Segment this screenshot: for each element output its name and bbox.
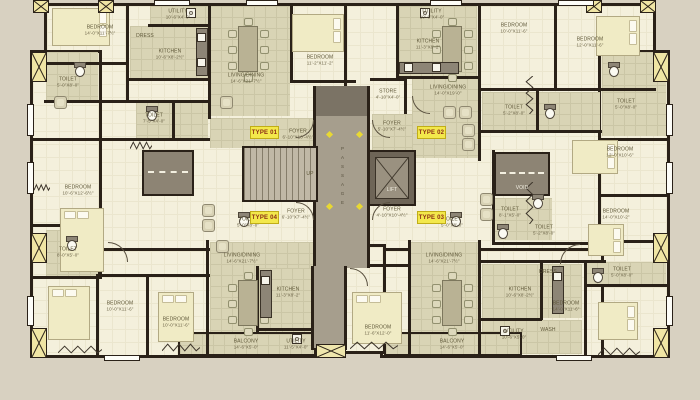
zigzag-window-icon: [130, 138, 152, 149]
type-02-tag[interactable]: TYPE 02: [417, 126, 446, 139]
room-label-kitchen: KITCHEN11'-3"X8'-2": [416, 38, 440, 49]
appliance-icon: [261, 276, 270, 285]
sofa-cushion: [480, 208, 493, 221]
room-label-living-dining: LIVING/DINING14'-6"X21'-7½": [426, 252, 463, 263]
wall: [404, 78, 407, 114]
passage-label: PASSAGE: [340, 146, 345, 266]
sofa-cushion: [220, 96, 233, 109]
room-label-living-dining: LIVING/DINING14'-6"X21'-7½": [228, 72, 265, 83]
bed: [588, 224, 624, 256]
window: [154, 0, 190, 6]
sofa-cushion: [462, 124, 475, 137]
toilet-icon: [497, 224, 507, 238]
appliance-icon: [197, 33, 206, 42]
sofa-cushion: [480, 193, 493, 206]
room-label-dress: DRESS: [136, 33, 154, 39]
window: [246, 0, 278, 6]
lobby-dark: [316, 86, 370, 116]
void-box-left: [142, 150, 194, 196]
window: [27, 104, 34, 136]
type-01-tag[interactable]: TYPE 01: [250, 126, 279, 139]
room-label-toilet: TOILET5'-2"X8'-0": [503, 104, 525, 115]
column-marker: [640, 0, 656, 13]
bed: [352, 292, 402, 344]
type-03-tag[interactable]: TYPE 03: [417, 211, 446, 224]
wall: [584, 260, 587, 358]
wall: [480, 260, 606, 263]
chair: [228, 300, 237, 308]
toilet-icon: [74, 62, 84, 76]
chair: [228, 46, 237, 54]
window: [666, 104, 673, 136]
wall: [44, 100, 210, 103]
mat-x-icon: [317, 345, 345, 357]
chair: [432, 284, 441, 292]
chair: [464, 62, 473, 70]
bed: [292, 14, 344, 52]
room-label-foyer: FOYER6'-10"X7'-4½": [282, 208, 310, 219]
appliance-icon: [404, 63, 413, 72]
room-label-bedroom: BEDROOM12'-0"X10'-6": [606, 146, 633, 157]
wall: [146, 276, 149, 358]
room-label-bedroom: BEDROOM14'-0"X10'-2": [602, 208, 629, 219]
dining-table: [442, 280, 462, 326]
chair: [464, 284, 473, 292]
chair: [228, 316, 237, 324]
room-label-utility: UTILITY10'-6"X5'-0": [502, 328, 527, 339]
room-label-toilet: TOILET5'-0"X8'-0": [611, 266, 633, 277]
room-label-living-dining: LIVING/DINING14'-0"X19'-0": [430, 84, 467, 95]
wall: [311, 266, 314, 350]
chair: [448, 18, 457, 26]
wall: [126, 78, 211, 81]
window: [666, 162, 673, 194]
column-marker: [31, 52, 47, 82]
zigzag-window-icon: [58, 342, 102, 353]
toilet-icon: [544, 104, 554, 118]
room-label-toilet: TOILET5'-0"X8'-0": [57, 76, 79, 87]
room-label-kitchen: KITCHEN10'-6"X8'-2½": [506, 286, 534, 297]
room-label-foyer: FOYER6'-10"X10'-4½": [282, 128, 313, 139]
room-label-kitchen: KITCHEN11'-3"X8'-2": [276, 286, 300, 297]
chair: [228, 62, 237, 70]
room-label-toilet: TOILET8'-0"X5'-0": [57, 246, 79, 257]
room-label-bedroom: BEDROOM10'-6"X12'-6½": [62, 184, 93, 195]
sofa-cushion: [216, 240, 229, 253]
toilet-icon: [608, 62, 618, 76]
type-04-tag[interactable]: TYPE 04: [250, 211, 279, 224]
bed: [48, 286, 90, 340]
room-label-utility: UTILITY10'-6"X4'-0": [420, 8, 445, 19]
wall: [206, 240, 209, 358]
chair: [448, 74, 457, 82]
chair: [260, 62, 269, 70]
room-label-toilet: TOILET7'-5"X4'-0": [143, 112, 165, 123]
room-label-toilet: TOILET5'-0"X8'-0": [615, 98, 637, 109]
wall: [290, 80, 356, 83]
room-label-bedroom: BEDROOM11'-2"X11'-2": [307, 54, 334, 65]
entrance-mat: [316, 344, 346, 358]
room-label-bedroom: BEDROOM10'-0"X11'-6": [107, 300, 134, 311]
chair: [244, 272, 253, 280]
room-label-dress: DRESS: [539, 269, 557, 275]
chair: [448, 328, 457, 336]
sofa-cushion: [202, 204, 215, 217]
room-label-toilet: TOILET8'-1"X5'-0": [499, 206, 521, 217]
room-label-wash: WASH: [540, 327, 555, 333]
wall: [478, 3, 481, 161]
column-marker: [653, 233, 669, 263]
chair: [432, 316, 441, 324]
wall: [536, 90, 539, 132]
chair: [432, 30, 441, 38]
sofa-cushion: [459, 106, 472, 119]
column-marker: [31, 328, 47, 358]
wall: [148, 24, 210, 27]
room-label-bedroom: BEDROOM10'-0"X11'-6": [501, 22, 528, 33]
bed: [598, 302, 638, 340]
window: [430, 0, 462, 6]
wall: [480, 318, 542, 321]
room-label-kitchen: KITCHEN10'-6"X8'-2½": [156, 48, 184, 59]
appliance-icon: [432, 63, 441, 72]
room-label-balcony: BALCONY14'-6"X5'-0": [234, 338, 259, 349]
wall: [408, 240, 411, 358]
zigzag-window-icon: [350, 338, 398, 349]
dining-set: [430, 272, 476, 336]
dining-table: [238, 280, 258, 326]
wall: [96, 274, 210, 277]
wall: [44, 62, 129, 65]
column-marker: [31, 233, 47, 263]
wall: [480, 130, 602, 133]
void-label: VOID: [516, 185, 529, 191]
room-label-utility: UTILITY10'-6"X4'-0": [166, 8, 191, 19]
room-label-foyer: FOYER4'-10"X10'-4½": [376, 206, 407, 217]
column-marker: [98, 0, 114, 13]
wall: [478, 240, 481, 358]
wall: [598, 194, 668, 197]
window: [558, 0, 594, 6]
room-label-bedroom: BEDROOM12'-0"X11'-6": [577, 36, 604, 47]
zigzag-window-icon: [598, 344, 640, 355]
chair: [244, 328, 253, 336]
sofa-cushion: [443, 106, 456, 119]
dining-table: [238, 26, 258, 72]
chair: [244, 18, 253, 26]
chair: [464, 46, 473, 54]
wall: [480, 88, 656, 91]
room-label-bedroom: BEDROOM14'-0"X11'-7½": [85, 24, 116, 35]
room-label-living-dining: LIVING/DINING14'-6"X21'-7½": [224, 252, 261, 263]
stairs-up-label: UP: [306, 171, 313, 177]
column-marker: [33, 0, 49, 13]
chair: [464, 300, 473, 308]
window: [104, 355, 140, 361]
chair: [260, 30, 269, 38]
room-label-bedroom: BEDROOM14'-0"X11'-6": [553, 300, 580, 311]
wall: [370, 78, 406, 81]
room-label-store: STORE4'-10"X4'-0": [376, 88, 401, 99]
wall: [344, 266, 347, 350]
tile-toilets-tr: [482, 92, 600, 130]
wall: [584, 284, 668, 287]
chair: [228, 284, 237, 292]
chair: [464, 30, 473, 38]
wall: [172, 100, 175, 141]
window: [556, 355, 592, 361]
chair: [464, 316, 473, 324]
wall: [99, 50, 102, 102]
toilet-icon: [592, 268, 602, 282]
wall: [554, 3, 557, 90]
column-marker: [653, 328, 669, 358]
zigzag-window-icon: [162, 340, 200, 351]
chair: [228, 30, 237, 38]
sofa-cushion: [54, 96, 67, 109]
column-marker: [653, 52, 669, 82]
lift-label: LIFT: [387, 187, 398, 193]
room-label-bedroom: BEDROOM11'-6"X12'-0": [365, 324, 392, 335]
passage-lower: [313, 266, 346, 348]
zigzag-window-icon: [524, 76, 535, 114]
floor-plan: BEDROOM14'-0"X11'-7½" TOILET5'-0"X8'-0" …: [0, 0, 700, 400]
room-label-toilet: TOILET5'-2"X8'-0": [533, 224, 555, 235]
room-label-foyer: FOYER5'-10"X7'-4½": [378, 120, 406, 131]
wall: [32, 276, 102, 279]
sofa-cushion: [202, 219, 215, 232]
window: [27, 162, 34, 194]
room-label-balcony: BALCONY14'-6"X5'-0": [440, 338, 465, 349]
room-label-bedroom: BEDROOM10'-0"X11'-6": [163, 316, 190, 327]
window: [27, 296, 34, 326]
appliance-icon: [197, 58, 206, 67]
chair: [432, 300, 441, 308]
sofa-cushion: [462, 138, 475, 151]
wall: [126, 3, 129, 101]
room-label-utility: UTILITY11'-5"X4'-0": [284, 338, 308, 349]
chair: [448, 272, 457, 280]
wall: [32, 138, 210, 141]
zigzag-window-icon: [34, 179, 50, 188]
chair: [260, 46, 269, 54]
window: [666, 296, 673, 326]
